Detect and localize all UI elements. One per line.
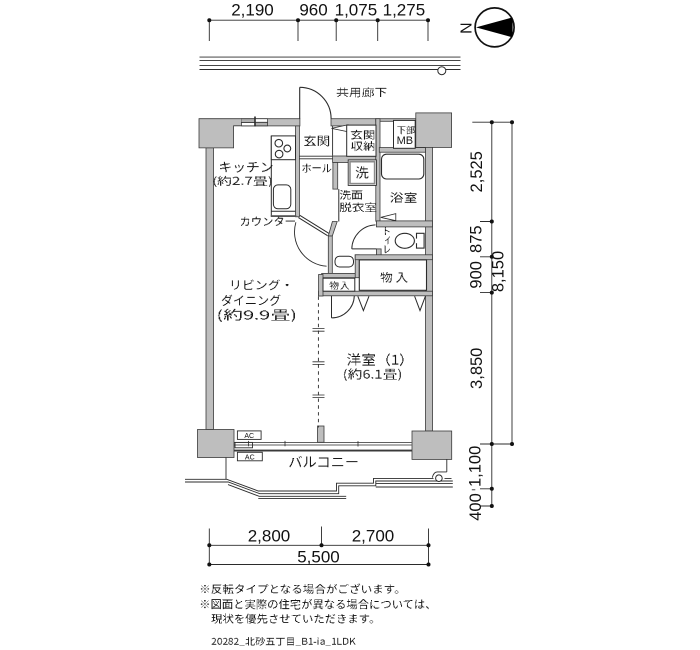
svg-text:2,800: 2,800 [248, 527, 291, 546]
svg-text:8,150: 8,150 [489, 251, 507, 292]
svg-text:AC: AC [244, 433, 254, 440]
svg-text:AC: AC [245, 454, 255, 461]
svg-text:875: 875 [467, 225, 485, 253]
svg-text:1,275: 1,275 [383, 1, 426, 20]
svg-text:2,700: 2,700 [352, 527, 395, 546]
svg-text:N: N [456, 22, 473, 34]
svg-text:1,075: 1,075 [335, 1, 378, 20]
svg-text:1,100: 1,100 [467, 446, 485, 487]
svg-text:2,190: 2,190 [231, 1, 274, 20]
svg-text:960: 960 [299, 1, 327, 20]
svg-text:MB: MB [397, 135, 414, 147]
svg-text:2,525: 2,525 [468, 151, 486, 192]
svg-text:5,500: 5,500 [297, 547, 340, 566]
svg-text:400: 400 [467, 493, 485, 521]
svg-text:900: 900 [468, 261, 486, 289]
svg-text:3,850: 3,850 [468, 348, 486, 389]
